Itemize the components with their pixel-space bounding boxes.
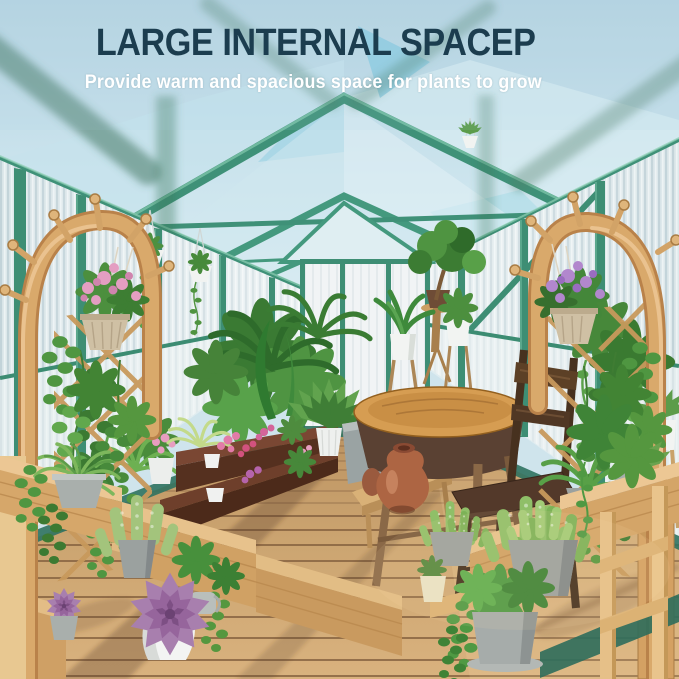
greenhouse-marketing-image: LARGE INTERNAL SPACEP Provide warm and s… <box>0 0 679 679</box>
greenhouse-photo <box>0 0 679 679</box>
